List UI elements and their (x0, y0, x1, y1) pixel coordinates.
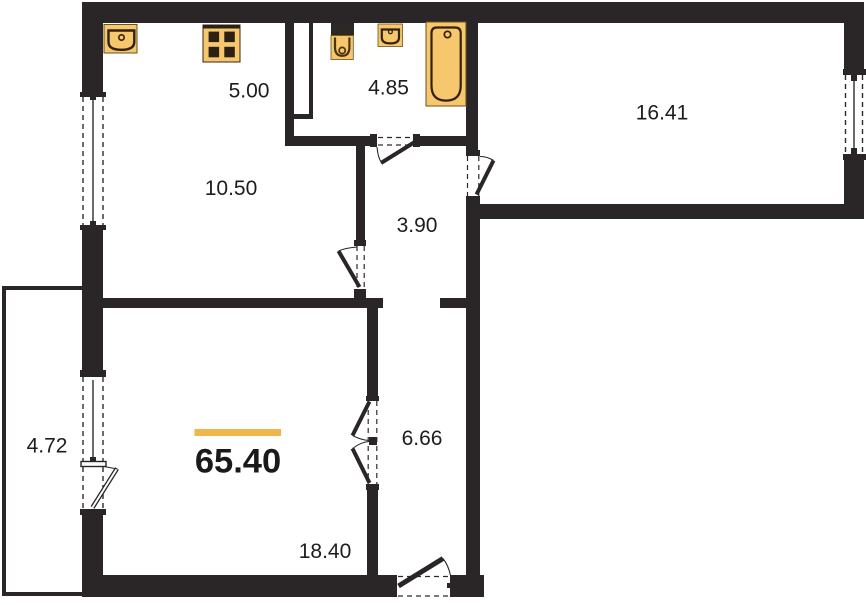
svg-text:18.40: 18.40 (299, 540, 352, 563)
svg-text:4.72: 4.72 (27, 435, 68, 458)
svg-text:16.41: 16.41 (636, 102, 689, 125)
svg-text:5.00: 5.00 (229, 80, 270, 103)
svg-text:6.66: 6.66 (402, 427, 443, 450)
svg-text:10.50: 10.50 (205, 177, 258, 200)
svg-text:4.85: 4.85 (368, 77, 409, 100)
svg-text:65.40: 65.40 (195, 443, 281, 481)
svg-text:3.90: 3.90 (397, 214, 438, 237)
